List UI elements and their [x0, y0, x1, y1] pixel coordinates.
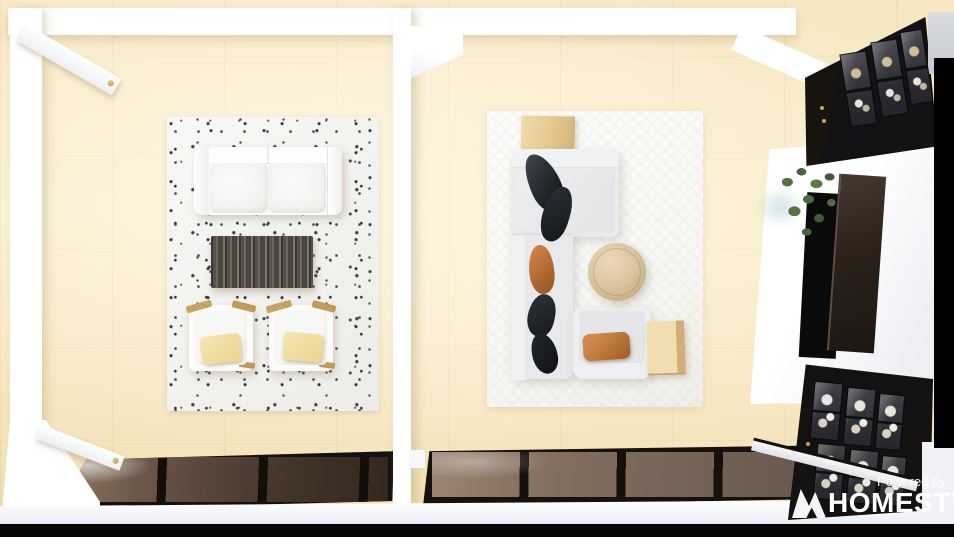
- wall-left: [10, 8, 42, 432]
- sofa-cushion: [210, 163, 268, 213]
- orange-pillow: [582, 331, 631, 361]
- cabinet-glass-panel: [875, 393, 906, 451]
- render-edge-right: [934, 58, 954, 448]
- sofa-armrest: [327, 147, 342, 215]
- yellow-pillow: [282, 331, 324, 362]
- render-canvas: Powered by HOMESTYLER: [0, 0, 954, 537]
- door-knob-icon: [107, 79, 115, 87]
- armchair-left: [189, 305, 253, 371]
- sofa-armrest: [194, 147, 209, 215]
- cabinet-glass-panel: [810, 381, 844, 441]
- potted-plant: [768, 158, 856, 244]
- yellow-pillow: [199, 333, 242, 366]
- loveseat-sofa: [194, 147, 342, 215]
- coffee-table-dark-wood: [211, 236, 313, 288]
- wall-middle: [393, 8, 411, 504]
- side-table-right: [646, 320, 686, 375]
- round-coffee-table: [588, 243, 646, 301]
- sofa-backrest: [209, 147, 327, 164]
- sofa-cushion: [269, 163, 326, 213]
- door-knob-icon: [112, 457, 120, 465]
- render-edge-bottom: [0, 524, 954, 537]
- wall-pillar-step: [409, 450, 425, 468]
- cabinet-knob-icon: [806, 442, 810, 446]
- cabinet-glass-panel: [843, 387, 877, 447]
- side-table-top: [521, 115, 576, 151]
- sectional-backrest: [511, 235, 526, 380]
- wall-middle-return: [411, 26, 463, 78]
- table-edge-ring: [593, 248, 641, 296]
- armchair-right: [269, 305, 333, 371]
- window-glass: [432, 452, 843, 497]
- cabinet-knob-icon: [820, 106, 824, 110]
- cabinet-knob-icon: [822, 119, 826, 123]
- wall-right-lower: [922, 442, 954, 526]
